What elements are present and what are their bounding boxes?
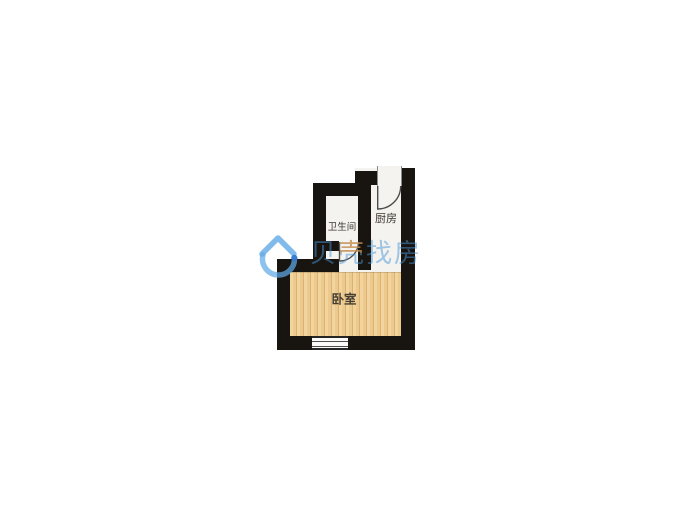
entry-door-opening	[377, 166, 402, 186]
wall-segment	[358, 171, 371, 270]
bedroom-label: 卧室	[331, 289, 356, 308]
wall-segment	[313, 241, 339, 251]
floorplan-screenshot: 卫生间 厨房 卧室 贝 壳 壳 找 房	[0, 0, 690, 518]
window-symbol	[312, 336, 348, 350]
kitchen-label: 厨房	[375, 210, 397, 226]
window-glass-lines	[312, 341, 348, 347]
wall-segment	[401, 168, 415, 350]
bathroom-label: 卫生间	[328, 219, 357, 233]
